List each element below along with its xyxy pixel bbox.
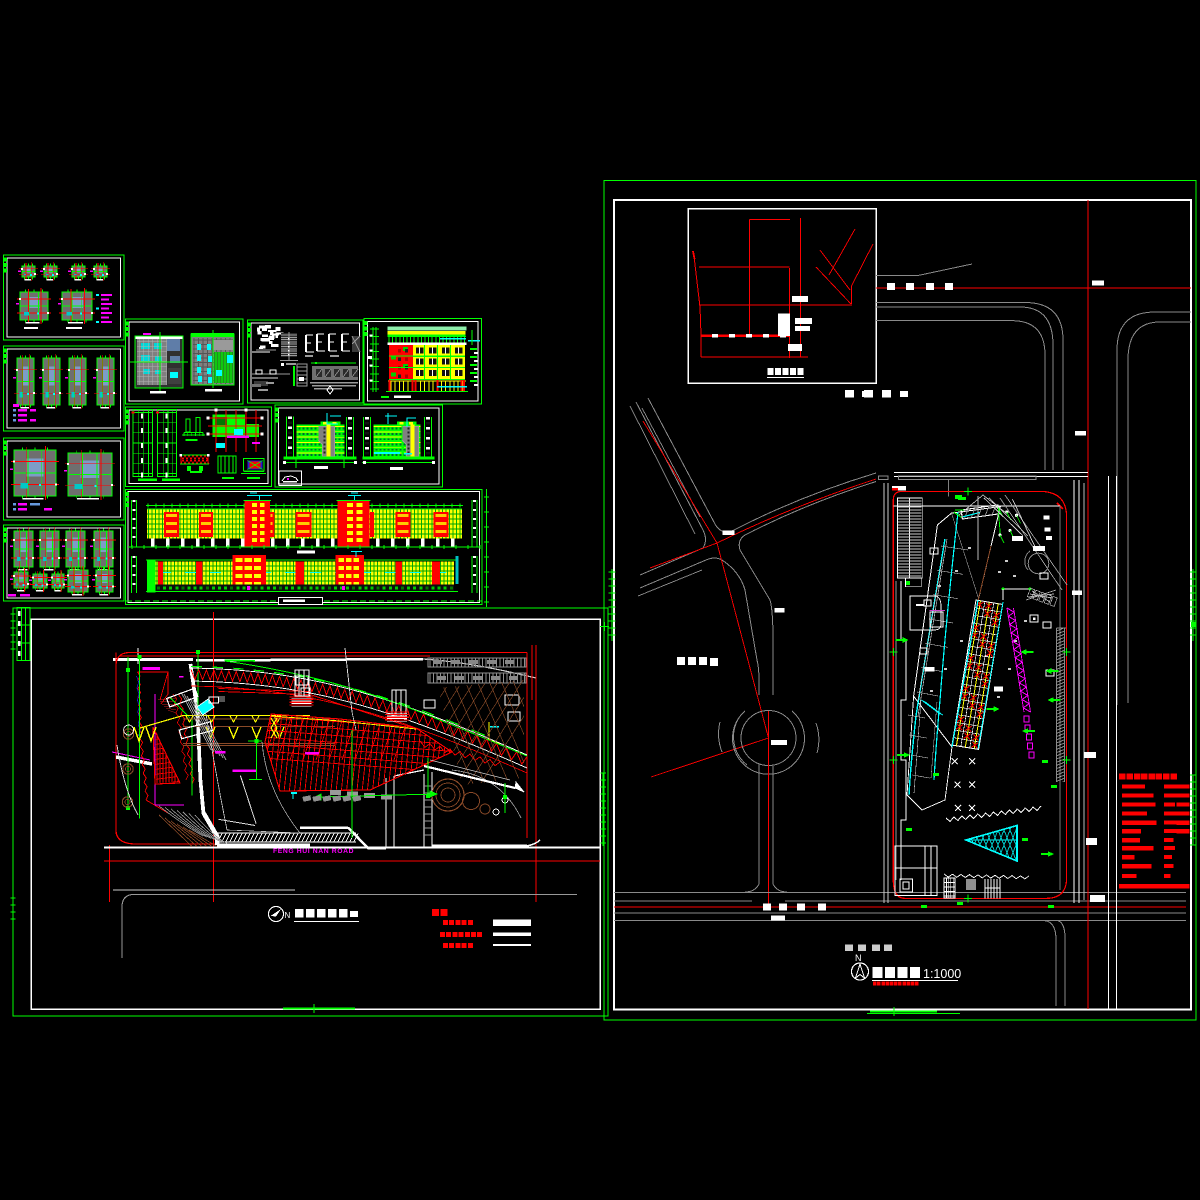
svg-text:N: N [855, 953, 862, 963]
svg-text:FENG HUI NAN ROAD: FENG HUI NAN ROAD [273, 848, 354, 855]
svg-text:N: N [285, 911, 291, 920]
svg-text:1:1000: 1:1000 [923, 967, 961, 981]
